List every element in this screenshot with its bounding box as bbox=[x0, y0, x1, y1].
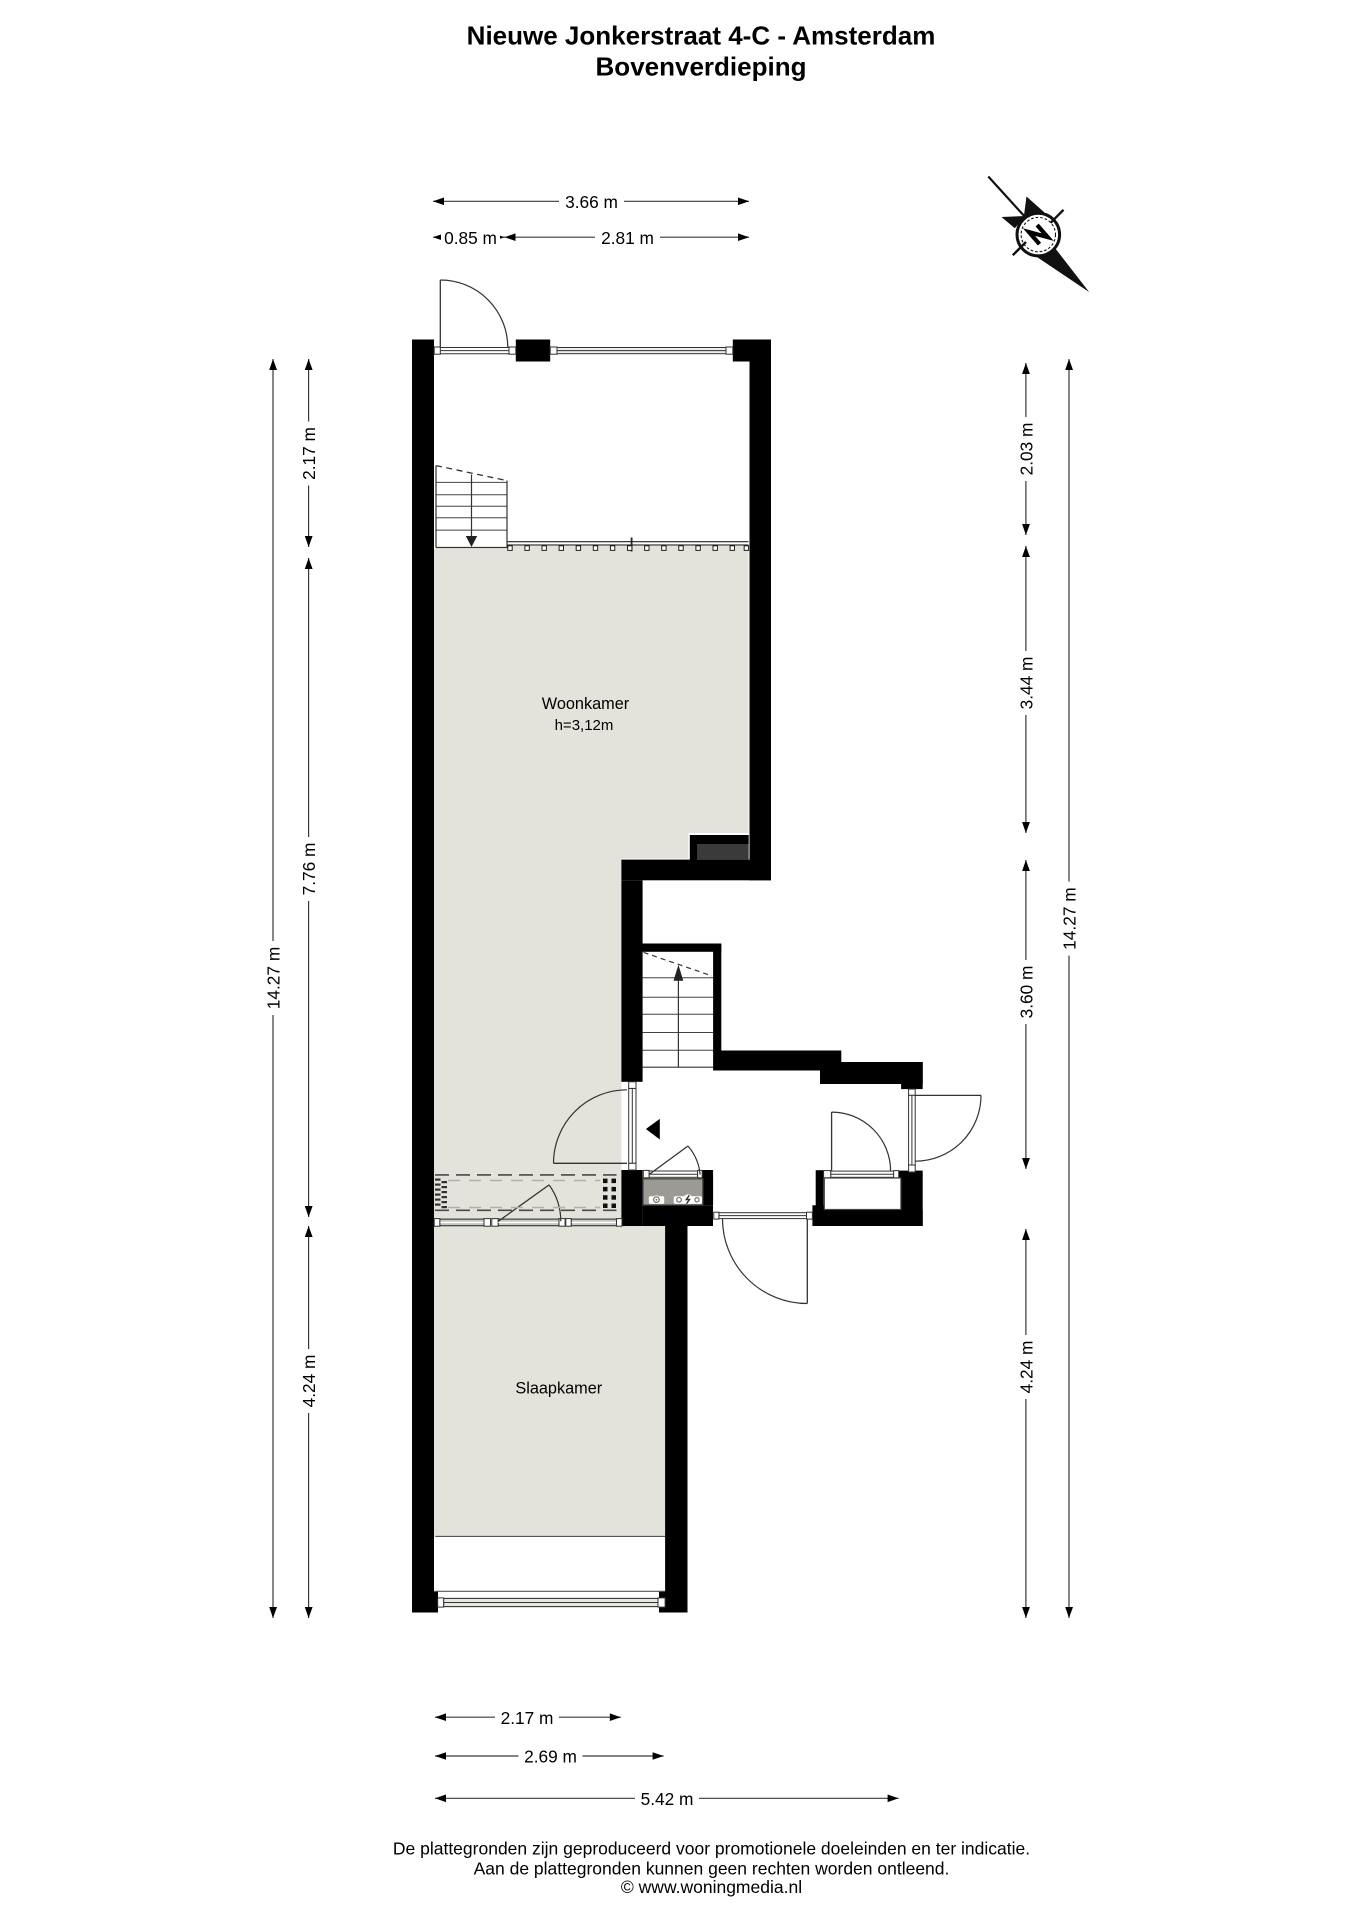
svg-text:2.81 m: 2.81 m bbox=[601, 228, 654, 248]
svg-text:Slaapkamer: Slaapkamer bbox=[515, 1379, 602, 1397]
svg-text:Bovenverdieping: Bovenverdieping bbox=[596, 52, 807, 82]
svg-text:3.60 m: 3.60 m bbox=[1016, 966, 1036, 1019]
svg-text:0.85 m: 0.85 m bbox=[444, 228, 497, 248]
svg-text:2.03 m: 2.03 m bbox=[1016, 423, 1036, 476]
svg-text:© www.woningmedia.nl: © www.woningmedia.nl bbox=[621, 1877, 802, 1897]
svg-text:3.44 m: 3.44 m bbox=[1016, 657, 1036, 710]
svg-text:14.27 m: 14.27 m bbox=[1060, 887, 1080, 949]
svg-text:Woonkamer: Woonkamer bbox=[542, 695, 630, 713]
svg-text:De plattegronden zijn geproduc: De plattegronden zijn geproduceerd voor … bbox=[393, 1839, 1030, 1859]
svg-text:5.42 m: 5.42 m bbox=[641, 1789, 694, 1809]
svg-text:Aan de plattegronden kunnen ge: Aan de plattegronden kunnen geen rechten… bbox=[474, 1859, 950, 1879]
svg-text:3.66 m: 3.66 m bbox=[565, 192, 618, 212]
svg-text:7.76 m: 7.76 m bbox=[299, 843, 319, 896]
svg-text:2.17 m: 2.17 m bbox=[299, 427, 319, 480]
svg-text:h=3,12m: h=3,12m bbox=[555, 717, 614, 734]
svg-text:2.69 m: 2.69 m bbox=[524, 1747, 577, 1767]
svg-text:4.24 m: 4.24 m bbox=[299, 1355, 319, 1408]
svg-text:2.17 m: 2.17 m bbox=[501, 1708, 554, 1728]
svg-text:Nieuwe Jonkerstraat 4-C - Amst: Nieuwe Jonkerstraat 4-C - Amsterdam bbox=[467, 21, 936, 51]
svg-text:4.24 m: 4.24 m bbox=[1016, 1341, 1036, 1394]
svg-text:14.27 m: 14.27 m bbox=[264, 947, 284, 1009]
